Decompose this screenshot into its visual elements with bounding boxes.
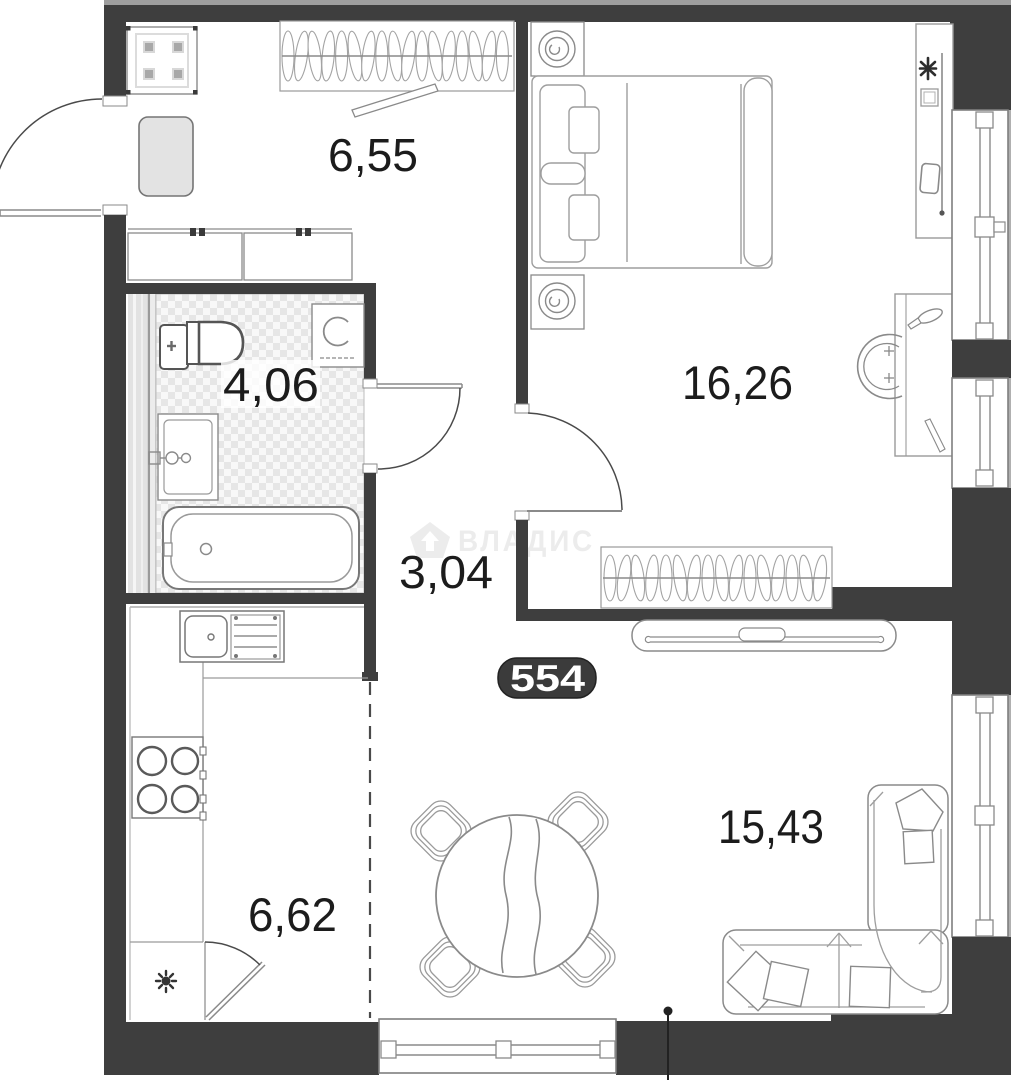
svg-text:6,62: 6,62 <box>248 888 337 941</box>
svg-text:15,43: 15,43 <box>718 800 824 853</box>
svg-text:554: 554 <box>510 658 586 699</box>
svg-text:16,26: 16,26 <box>682 356 793 409</box>
svg-text:4,06: 4,06 <box>223 358 319 411</box>
svg-text:6,55: 6,55 <box>328 129 418 181</box>
svg-text:3,04: 3,04 <box>399 546 493 598</box>
